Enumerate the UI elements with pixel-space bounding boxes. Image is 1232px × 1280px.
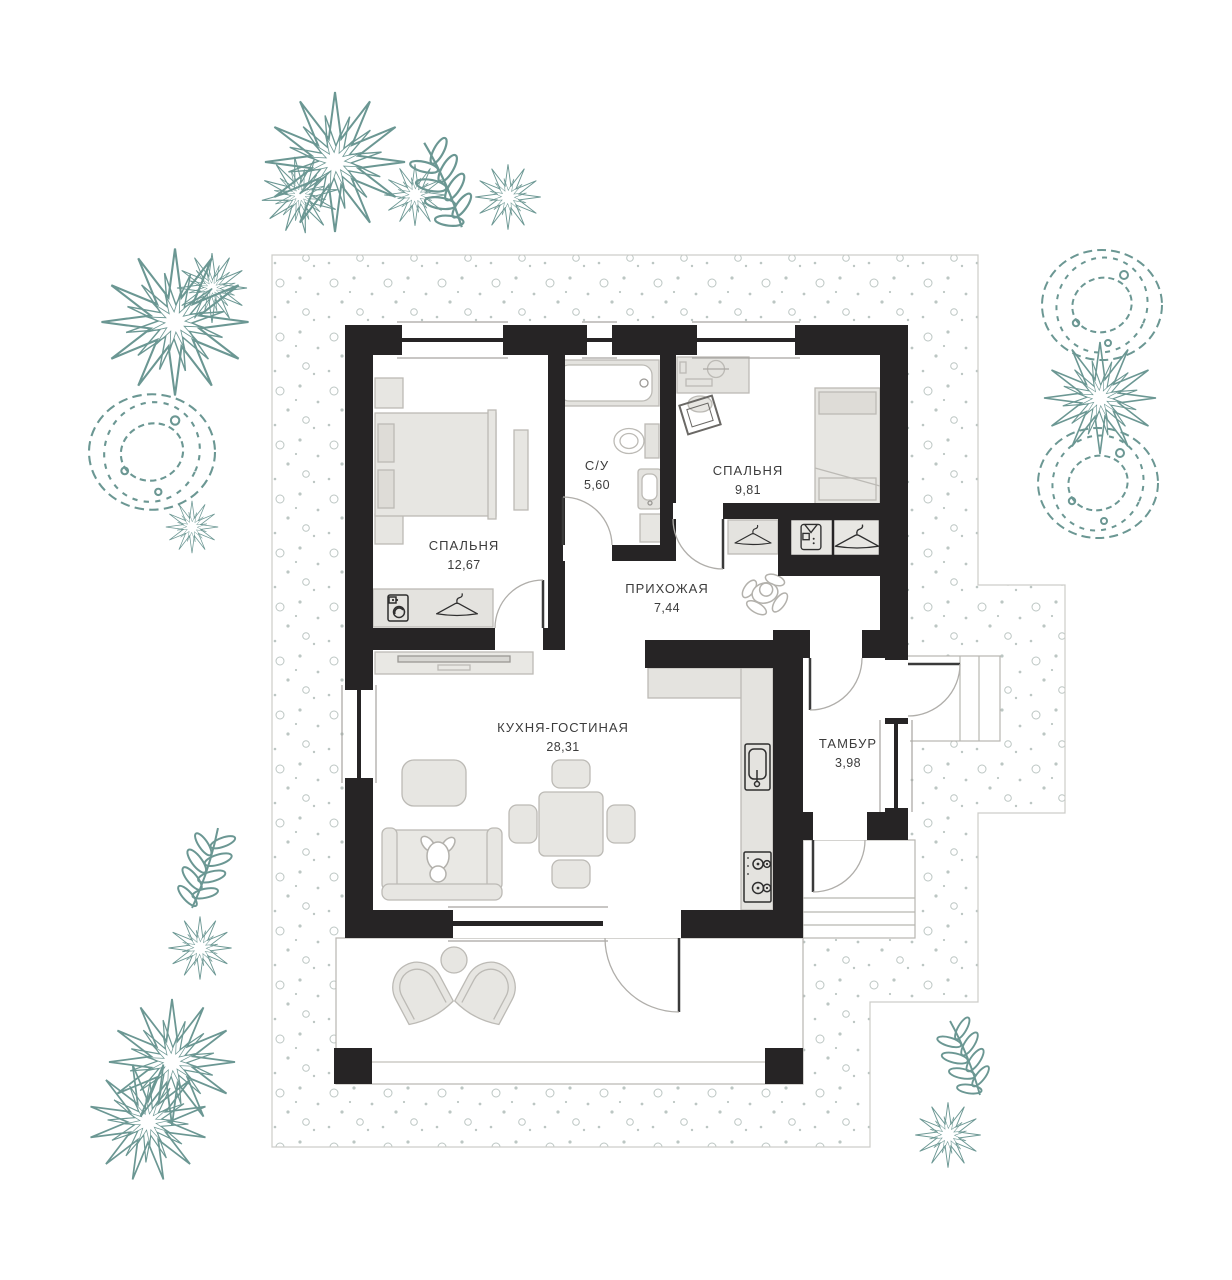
room-area-kitchen-living: 28,31: [546, 740, 579, 754]
window-bedroom-1: [397, 322, 508, 358]
plant-aster-mid-left: [168, 916, 231, 979]
entry-porch: [906, 656, 1000, 741]
sofa-back: [382, 884, 502, 900]
nightstand: [375, 514, 403, 544]
plant-aster-top-2: [475, 164, 540, 229]
room-label-vestibule: ТАМБУР: [819, 736, 877, 751]
double-bed: [375, 410, 496, 519]
plant-fern-mid-left: [169, 821, 241, 916]
hall-closet: [790, 519, 880, 556]
outdoor-table: [441, 947, 467, 973]
room-area-vestibule: 3,98: [835, 756, 861, 770]
bedroom-bench: [514, 430, 528, 510]
room-area-bathroom: 5,60: [584, 478, 610, 492]
wall-exterior-right: [880, 325, 908, 630]
bathtub-icon: [553, 360, 659, 406]
bath-sink-icon: [638, 469, 661, 509]
plant-fern-bottom-right: [929, 1012, 1002, 1104]
wardrobe-bedroom-1: [373, 589, 493, 627]
dining-chair: [552, 860, 590, 888]
room-label-kitchen-living: КУХНЯ-ГОСТИНАЯ: [497, 720, 629, 735]
plant-spiky-bush-top-left: [250, 92, 405, 245]
room-label-bedroom-1: СПАЛЬНЯ: [429, 538, 500, 553]
dining-chair: [552, 760, 590, 788]
veranda-pillar-right: [765, 1048, 803, 1084]
plant-aster-left: [166, 501, 218, 553]
wardrobe-bedroom-2: [728, 520, 778, 554]
dining-chair: [509, 805, 537, 843]
pillow: [378, 470, 394, 508]
pillow: [819, 392, 876, 414]
room-label-bathroom: С/У: [585, 458, 609, 473]
veranda-pillar-left: [334, 1048, 372, 1084]
window-bathroom: [582, 322, 617, 358]
plant-spiky-bush-right: [1044, 342, 1156, 454]
bath-cabinet: [640, 514, 661, 542]
room-area-hallway: 7,44: [654, 601, 680, 615]
wall-vestibule-left: [773, 630, 803, 938]
floor-plan-page: СПАЛЬНЯ 12,67 С/У 5,60 СПАЛЬНЯ 9,81 ПРИХ…: [0, 0, 1232, 1280]
sofa-armrest: [382, 828, 397, 890]
coffee-table: [402, 760, 466, 806]
wall-closet-bottom: [778, 556, 908, 576]
pillow: [378, 424, 394, 462]
dining-table: [539, 792, 603, 856]
plant-spiky-bush-left-upper: [102, 240, 260, 395]
desk: [677, 357, 749, 393]
plant-cloud-bush-left: [88, 386, 216, 517]
nightstand: [375, 378, 403, 408]
plant-aster-bottom-right: [915, 1102, 980, 1167]
window-bedroom-2: [692, 322, 800, 358]
window-kitchen-left: [342, 685, 376, 783]
room-area-bedroom-2: 9,81: [735, 483, 761, 497]
tv-console: [375, 652, 533, 674]
back-steps: [803, 840, 915, 938]
dining-chair: [607, 805, 635, 843]
room-area-bedroom-1: 12,67: [447, 558, 480, 572]
plant-cloud-bush-right-top: [1041, 242, 1163, 367]
plant-spiky-bush-bottom-left: [75, 999, 235, 1195]
sofa-armrest: [487, 828, 502, 890]
floor-plan-svg: СПАЛЬНЯ 12,67 С/У 5,60 СПАЛЬНЯ 9,81 ПРИХ…: [0, 0, 1232, 1280]
bed-footboard: [488, 410, 496, 519]
room-label-bedroom-2: СПАЛЬНЯ: [713, 463, 784, 478]
room-label-hallway: ПРИХОЖАЯ: [625, 581, 709, 596]
single-bed: [815, 388, 880, 504]
plant-fern-top: [400, 132, 487, 239]
wall-kitchen-top: [645, 640, 775, 668]
window-kitchen-bottom: [448, 907, 608, 941]
window-vestibule: [880, 720, 912, 812]
